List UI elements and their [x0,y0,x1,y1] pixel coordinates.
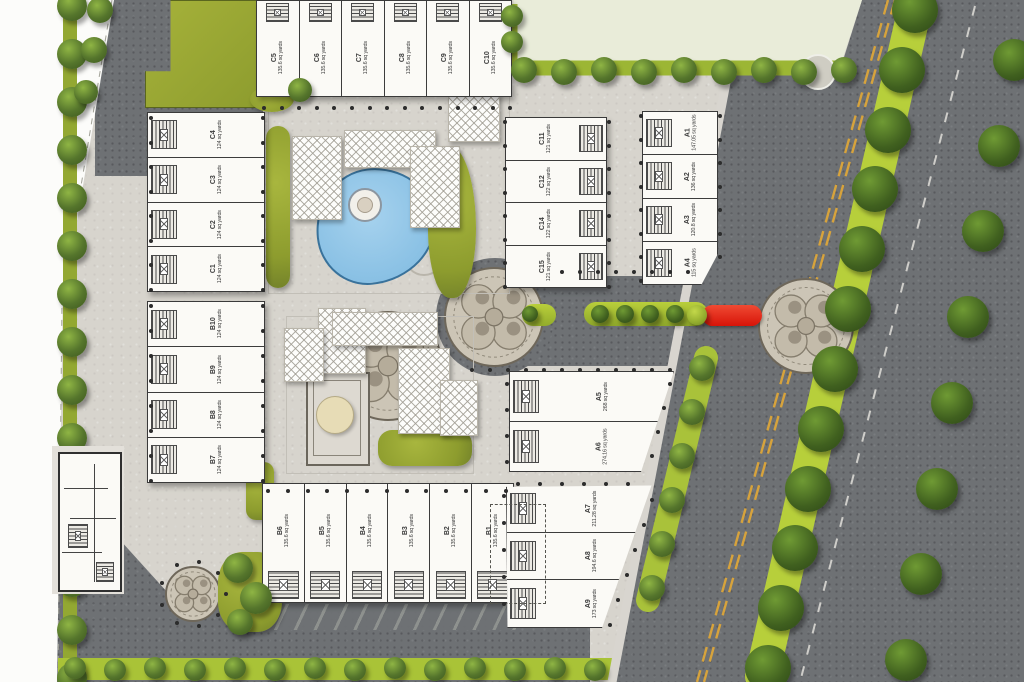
bollard-dot [718,185,722,189]
bollard-dot [503,144,507,148]
bollard-dot [350,106,354,110]
bollard-dot [306,489,310,493]
bollard-dot [385,489,389,493]
bollard-dot [560,270,564,274]
bollard-dot [261,429,265,433]
bollard-dot [297,106,301,110]
bollard-dot [149,379,153,383]
bollard-dot [503,214,507,218]
bollard-dot [639,255,643,259]
bollard-dot [491,106,495,110]
bollard-dot [502,521,506,525]
bollard-dot [662,406,666,410]
bollard-dot [175,563,179,567]
bollard-dot [578,270,582,274]
bollard-dot [656,430,660,434]
bollard-dot [668,382,672,386]
bollard-dot [368,106,372,110]
bollard-dot [216,571,220,575]
bollard-dot [639,279,643,283]
bollard-dot [639,232,643,236]
bollard-dot [650,498,654,502]
bollard-dot [197,560,201,564]
bollard-dot [508,106,512,110]
bollard-dot [470,368,474,372]
bollard-dot [424,489,428,493]
bollard-dot [632,270,636,274]
bollard-dot [420,106,424,110]
bollard-dot [502,494,506,498]
bollard-dot [444,489,448,493]
bollard-dot [503,238,507,242]
bollard-dot [149,329,153,333]
bollard-dot [261,329,265,333]
bollard-dot [607,144,611,148]
bollard-dot [261,263,265,267]
bollard-dot [160,603,164,607]
bollard-dot [488,368,492,372]
bollard-dot [149,116,153,120]
bollard-dot [604,482,608,486]
bollard-dot [718,138,722,142]
bollard-dot [503,191,507,195]
bollard-dot [650,454,654,458]
bollard-dot [505,434,509,438]
bollard-dot [149,404,153,408]
bollard-dot [473,106,477,110]
bollard-dot [560,482,564,486]
bollard-dot [332,106,336,110]
bollard-dot [149,141,153,145]
bollard-dot [607,191,611,195]
bollard-dot [261,288,265,292]
bollard-dot [261,454,265,458]
bollard-dot [608,623,612,627]
bollard-dot [625,573,629,577]
bollard-dot [261,116,265,120]
bollard-dot [261,479,265,483]
bollard-dot [175,621,179,625]
bollard-dot [607,285,611,289]
bollard-dot [149,214,153,218]
bollard-dot [505,408,509,412]
bollard-dot [607,238,611,242]
bollard-dot [596,270,600,274]
bollard-dot [505,382,509,386]
bollard-dot [325,489,329,493]
bollard-dot [502,548,506,552]
bollard-dot [633,548,637,552]
bollard-dot [607,261,611,265]
bollard-dot [315,106,319,110]
bollard-dot [503,285,507,289]
bollard-dot [542,368,546,372]
bollard-dot [149,454,153,458]
bollard-dot [262,106,266,110]
bollard-dot [718,161,722,165]
bollard-dot [197,624,201,628]
bollard-dot [261,354,265,358]
bollard-dot [502,602,506,606]
bollard-dot [607,120,611,124]
bollard-dot [365,489,369,493]
bollard-dot [149,239,153,243]
bollard-dot [385,106,389,110]
bollard-dot [616,598,620,602]
bollard-dot [718,232,722,236]
bollard-dot [668,368,672,372]
bollard-dot [639,161,643,165]
bollard-dot [403,106,407,110]
bollard-dot [224,592,228,596]
bollard-dot [149,165,153,169]
bollard-dot [632,368,636,372]
bollard-dot [538,482,542,486]
bollard-dot [639,208,643,212]
bollard-dot [503,167,507,171]
bollard-dot [639,185,643,189]
bollard-dot [642,523,646,527]
bollard-dot [438,106,442,110]
bollard-dot [578,368,582,372]
bollard-dot [405,489,409,493]
bollard-dot [286,489,290,493]
bollard-dot [261,141,265,145]
bollard-dot [160,581,164,585]
site-plan-canvas: C5135.6 sq yards C6135.6 sq yards C7135.… [0,0,1024,682]
bollard-dot [505,460,509,464]
bollard-dot [345,489,349,493]
bollard-dot [266,489,270,493]
bollard-dot [607,214,611,218]
bollard-dot [484,489,488,493]
bollard-dot [503,261,507,265]
bollard-dot [524,368,528,372]
bollard-dot [626,482,630,486]
bollard-dot [280,106,284,110]
bollard-dot [149,288,153,292]
bollard-dot [614,368,618,372]
bollard-dot [607,167,611,171]
bollard-dot [261,239,265,243]
bollard-dot [149,190,153,194]
bollard-dot [261,304,265,308]
bollard-dot [560,368,564,372]
bollard-dot [504,489,508,493]
bollard-dot [149,429,153,433]
bollard-dot [639,138,643,142]
bollard-dot [149,263,153,267]
bollard-dot [614,270,618,274]
bollard-dot [639,114,643,118]
bollard-dot [503,120,507,124]
bollard-dot [650,368,654,372]
bollard-dot [650,270,654,274]
bollard-dot [718,255,722,259]
bollard-dot [456,106,460,110]
bollard-dot [261,214,265,218]
bollard-dot [261,379,265,383]
bollard-layer [0,0,1024,682]
bollard-dot [718,114,722,118]
bollard-dot [261,165,265,169]
bollard-dot [464,489,468,493]
bollard-dot [149,479,153,483]
bollard-dot [149,354,153,358]
bollard-dot [668,270,672,274]
bollard-dot [506,368,510,372]
bollard-dot [718,208,722,212]
bollard-dot [596,368,600,372]
bollard-dot [686,270,690,274]
bollard-dot [502,575,506,579]
bollard-dot [261,404,265,408]
bollard-dot [582,482,586,486]
bollard-dot [516,482,520,486]
bollard-dot [149,304,153,308]
bollard-dot [261,190,265,194]
bollard-dot [216,613,220,617]
